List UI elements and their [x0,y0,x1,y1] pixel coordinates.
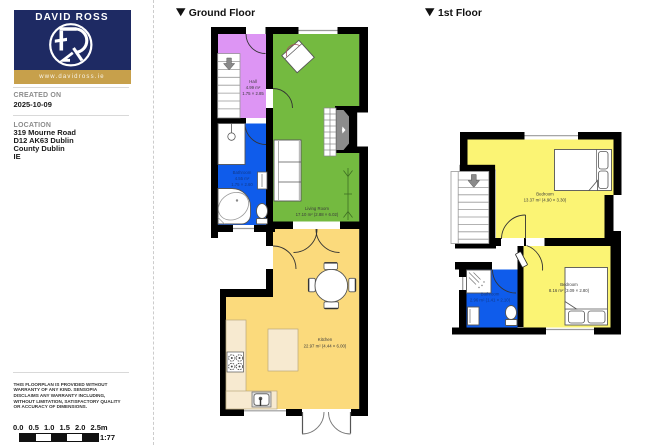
svg-text:4.99 m²: 4.99 m² [246,85,261,90]
svg-text:Bedroom: Bedroom [536,192,554,197]
svg-text:Bedroom: Bedroom [560,282,578,287]
svg-text:Kitchen: Kitchen [318,337,333,342]
svg-text:8.16 m² (3.09 × 2.80): 8.16 m² (3.09 × 2.80) [549,288,590,293]
svg-text:1.75 × 2.60: 1.75 × 2.60 [231,182,253,187]
svg-text:Bathroom: Bathroom [481,292,500,297]
svg-text:1.75 × 2.85: 1.75 × 2.85 [242,91,264,96]
svg-text:4.55 m²: 4.55 m² [235,176,250,181]
svg-text:22.97 m² (4.44 × 6.00): 22.97 m² (4.44 × 6.00) [304,344,347,349]
svg-text:13.37 m² (4.90 × 3.30): 13.37 m² (4.90 × 3.30) [524,198,567,203]
svg-text:Living Room: Living Room [305,206,329,211]
svg-text:17.10 m² (2.88 × 6.02): 17.10 m² (2.88 × 6.02) [296,212,339,217]
svg-text:Hall: Hall [249,79,256,84]
svg-text:2.96 m² (1.41 × 2.10): 2.96 m² (1.41 × 2.10) [470,298,511,303]
svg-text:Bathroom: Bathroom [233,170,252,175]
